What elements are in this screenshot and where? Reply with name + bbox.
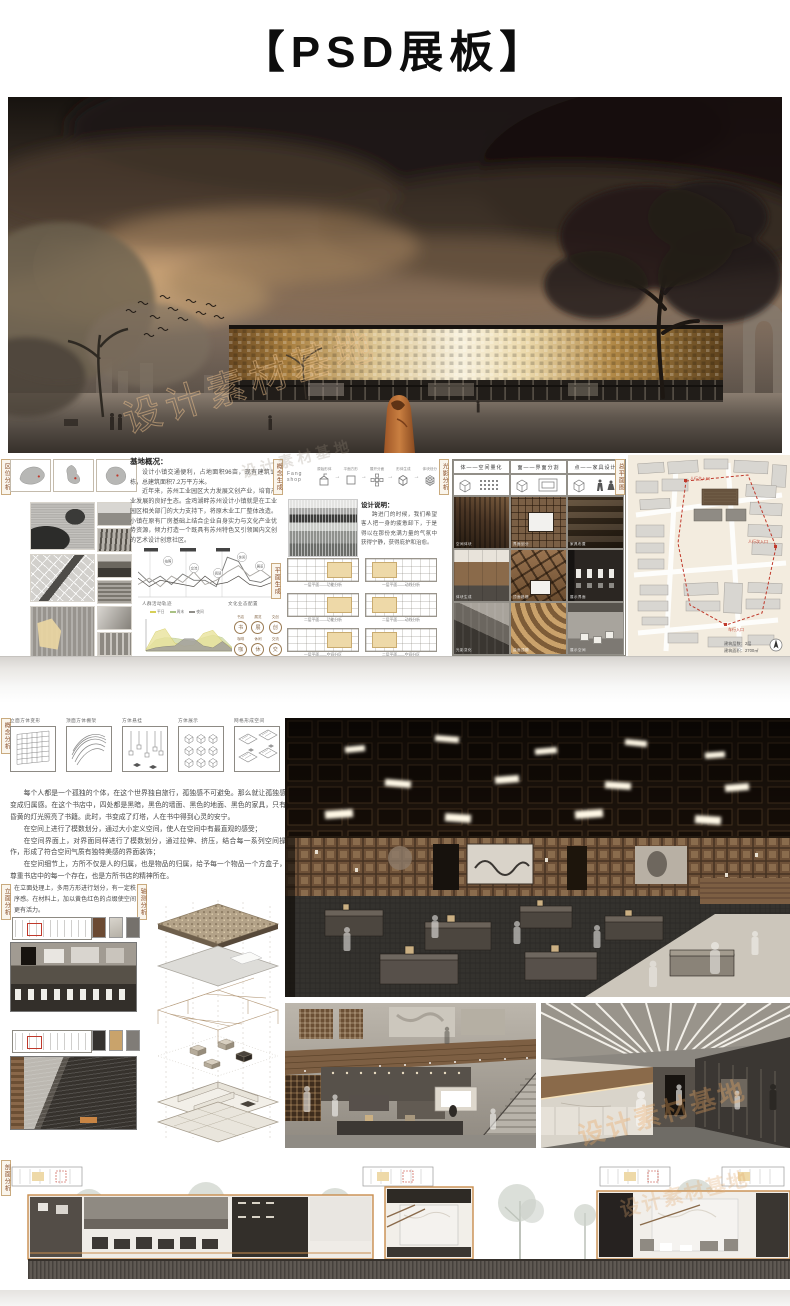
concept-p1: 每个人都是一个孤独的个体，在这个世界独自旅行，孤独感不可避免。那么就让孤独感变成… <box>10 788 286 824</box>
plan-drawing <box>365 593 437 617</box>
render-cell: 家具布置 <box>567 496 624 549</box>
concept-steps-row: Fang shop 原始形体 → 平面方形 → 展开分面 → 形体生成 → 体块… <box>287 459 437 495</box>
hanging-cubes-icon <box>123 727 167 771</box>
diagram-hanging-cubes: 方体悬挂 <box>122 718 168 772</box>
map-jiangsu <box>53 459 94 492</box>
cube-glyph-icon <box>396 473 410 487</box>
site-photo <box>97 528 132 552</box>
plan-key <box>12 1167 82 1186</box>
arrow-icon: → <box>414 474 420 480</box>
site-photo <box>97 502 132 526</box>
plan-key-strip <box>12 1030 92 1053</box>
svg-text:建筑层数：2层: 建筑层数：2层 <box>724 640 751 647</box>
render-cell: 体块生成 <box>453 549 510 602</box>
grid-header: 面——界面分割 <box>510 460 567 474</box>
concept-p4: 在空间细节上，方所不仅是人的归属，也是物品的归属，给予每一个物品一个方盒子，尊重… <box>10 859 286 883</box>
site-photo <box>97 580 132 604</box>
program-icon-bookstore: 书店书 <box>234 615 247 634</box>
plan-drawing <box>287 628 359 652</box>
section-1 <box>28 1195 373 1259</box>
program-icon-exhibition: 展览展 <box>251 615 264 634</box>
page-bottom-band <box>0 1290 790 1306</box>
diagram-facade-grid: 立面方体变形 <box>10 718 56 772</box>
site-overview-title: 基地概况： <box>130 456 277 467</box>
diagram-grid-space: 网格形成空间 <box>234 718 280 772</box>
lattice-wall <box>285 1075 321 1121</box>
concept-diagrams-row: 立面方体变形 顶面方体棚架 方体悬挂 方体展示 网格形成空间 <box>10 718 280 772</box>
svg-text:人行主入口: 人行主入口 <box>690 475 710 481</box>
site-maps-column <box>30 502 93 660</box>
elevation-render-2 <box>10 1056 137 1130</box>
divided-cube-icon <box>423 473 437 487</box>
render-cell: 空间体块 <box>453 496 510 549</box>
satellite-map-city <box>30 502 95 550</box>
board-divider <box>0 656 790 703</box>
cube-panel-icon <box>513 476 565 494</box>
grid-icon-volume <box>453 474 510 496</box>
render-cell: 顶面格栅 <box>510 549 567 602</box>
axon-slab-layer <box>158 946 278 986</box>
grid-icon-surface <box>510 474 567 496</box>
svg-text:休闲: 休闲 <box>239 554 246 559</box>
concept-p3: 在空间界面上，对界面同样进行了模数划分，通过拉伸、挤压，结合每一系列空间操作，形… <box>10 836 286 860</box>
design-note-text: 设计说明： 跨进门的时候，我们希望客人把一身的疲惫卸下，于是得以在那份充满力量的… <box>361 499 437 548</box>
concept-step-3: 展开分面 <box>370 467 384 487</box>
swatch-wood-dark <box>92 917 106 938</box>
flow-chart-legend: 平日 周末 夜间 <box>150 610 204 615</box>
svg-text:交流: 交流 <box>191 565 198 570</box>
concept-step-5: 体块划分 <box>423 467 437 487</box>
swatch-wood-light <box>109 1030 123 1051</box>
map-china <box>10 459 51 492</box>
plan-key-strip <box>12 917 92 940</box>
tag-facade-analysis: 立面分析 <box>1 884 11 920</box>
design-note-title: 设计说明： <box>361 499 437 509</box>
chart-callouts: 拍照 交流 阅读 休闲 展览 <box>163 552 264 577</box>
lattice-screen <box>299 1009 333 1039</box>
tag-light-analysis: 光影分析 <box>439 459 449 495</box>
svg-text:人行次入口: 人行次入口 <box>748 538 768 544</box>
svg-text:建筑面积：2700㎡: 建筑面积：2700㎡ <box>724 647 759 654</box>
facade-note-text: 在立面处理上，多用方形进行划分，有一定秩序感。在材料上，加以黄色红色的点缀使空间… <box>14 884 136 916</box>
plan-item: 一层平面——动线分析 <box>365 558 437 588</box>
analysis-board-top: 区位分析 基地概况： 设计小镇交通便 <box>0 455 790 658</box>
page-title: 【PSD展板】 <box>241 16 549 80</box>
title-band: 【PSD展板】 <box>0 0 790 95</box>
flow-area-chart <box>140 617 232 655</box>
ground-hatch <box>28 1261 790 1279</box>
compass-icon <box>770 639 782 651</box>
material-swatches <box>92 1030 140 1051</box>
street-map <box>30 554 95 602</box>
svg-text:车行入口: 车行入口 <box>728 626 744 632</box>
plan-item: 一层平面——功能分析 <box>287 558 359 588</box>
creative-icon: 创 <box>269 621 282 634</box>
light-analysis-grid: 体——空间量化 面——界面分割 点——家具设计 空间体块 界面划分 家具布置 体… <box>452 459 626 656</box>
cube-grid-icon <box>456 476 508 494</box>
master-plan: 人行主入口 人行次入口 车行入口 建筑层数：2层 建筑面积：2700㎡ <box>628 455 790 658</box>
plan-item: 一层平面——空间分区 <box>287 628 359 658</box>
site-overview-p2: 近年来，苏州工业园区大力发展文创产业，培育产业发展的良好生态。金鸡湖畔苏州设计小… <box>130 488 277 546</box>
section-2 <box>385 1187 473 1259</box>
coffee-icon: 咖 <box>234 643 247 656</box>
elevation-render-1 <box>10 942 137 1012</box>
plan-drawing <box>365 558 437 582</box>
diagram-cube-display: 方体展示 <box>178 718 224 772</box>
interior-render-corridor <box>541 1003 790 1148</box>
square-glyph-icon <box>344 473 358 487</box>
house-glyph-icon <box>317 473 331 487</box>
site-photos-column <box>97 502 130 656</box>
bookstore-icon: 书 <box>234 621 247 634</box>
svg-text:阅读: 阅读 <box>215 570 222 575</box>
concept-p2: 在空间上进行了模数划分，通过大小定义空间，使人在空间中有最直观的感受； <box>10 824 286 836</box>
swatch-marble <box>109 917 123 938</box>
material-swatches <box>92 917 140 938</box>
render-cell: 展示空间 <box>567 602 624 655</box>
render-cell: 界面划分 <box>510 496 567 549</box>
analysis-board-bottom: 概念分析 立面方体变形 顶面方体棚架 方体悬挂 方体展示 网格形成空间 <box>0 702 790 1306</box>
brand-text: Fang shop <box>287 471 314 483</box>
activity-line-chart: 拍照 交流 阅读 休闲 展览 <box>138 547 272 599</box>
program-icon-social: 交流交 <box>269 637 282 656</box>
section-3 <box>597 1191 790 1259</box>
social-icon: 交 <box>269 643 282 656</box>
plan-drawing <box>287 558 359 582</box>
chart-caption-left: 人群活动轨迹 <box>142 601 172 607</box>
diagram-canopy: 顶面方体棚架 <box>66 718 112 772</box>
unfolded-cube-icon <box>370 473 384 487</box>
satellite-map-site <box>30 606 95 660</box>
plan-item: 二层平面——功能分析 <box>287 593 359 623</box>
plan-drawing <box>365 628 437 652</box>
concept-step-2: 平面方形 <box>344 467 358 487</box>
wood-bench <box>700 878 790 904</box>
plan-key <box>363 1167 433 1186</box>
concept-photo-bw <box>288 499 358 557</box>
main-interior-render <box>285 718 790 997</box>
program-icon-creative: 文创创 <box>269 615 282 634</box>
tag-axon-analysis: 轴测分析 <box>137 884 147 920</box>
arrow-icon: → <box>387 474 393 480</box>
grid-header: 体——空间量化 <box>453 460 510 474</box>
plan-item: 二层平面——空间分区 <box>365 628 437 658</box>
plan-item: 二层平面——动线分析 <box>365 593 437 623</box>
hero-exterior-render: 设计素材基地 <box>8 97 782 453</box>
render-cell: 曲面顶棚 <box>510 602 567 655</box>
grid-wall-icon <box>11 727 55 771</box>
curved-canopy-icon <box>67 727 111 771</box>
axon-roof-layer <box>158 904 278 949</box>
exhibition-icon: 展 <box>251 621 264 634</box>
plan-thumbnails: 一层平面——功能分析 一层平面——动线分析 二层平面——功能分析 二层平面——动… <box>287 558 437 658</box>
tag-plan-generation: 平面生成 <box>271 563 281 599</box>
site-building <box>694 489 746 521</box>
leisure-icon: 休 <box>251 643 264 656</box>
program-icon-coffee: 咖啡咖 <box>234 637 247 656</box>
program-icon-leisure: 休闲休 <box>251 637 264 656</box>
poster-page: 【PSD展板】 <box>0 0 790 1306</box>
program-icons: 书店书 展览展 文创创 咖啡咖 休闲休 交流交 <box>234 615 282 656</box>
concept-step-1: 原始形体 <box>317 467 331 487</box>
concept-step-4: 形体生成 <box>396 467 410 487</box>
site-overview-p1: 设计小镇交通便利，占地面积96亩，现有建筑12栋，总建筑面积7.2万平方米。 <box>130 469 277 488</box>
plan-key <box>722 1167 784 1186</box>
site-photo <box>97 554 132 578</box>
plan-key <box>600 1167 670 1186</box>
sections-strip <box>0 1165 790 1287</box>
arrow-icon: → <box>361 474 367 480</box>
concept-text-block: 每个人都是一个孤独的个体，在这个世界独自旅行，孤独感不可避免。那么就让孤独感变成… <box>10 788 286 883</box>
tag-master-plan: 总平面图 <box>615 459 625 495</box>
iso-tiles-icon <box>235 727 279 771</box>
svg-text:展览: 展览 <box>257 563 264 568</box>
site-photo <box>97 632 132 656</box>
region-maps-row <box>10 459 137 492</box>
chart-caption-right: 文化业态配置 <box>228 601 258 607</box>
tag-concept-generation: 概念生成 <box>273 459 283 495</box>
swatch-gray <box>126 1030 140 1051</box>
arrow-icon: → <box>335 474 341 480</box>
site-photo <box>97 606 132 630</box>
interior-render-lobby <box>285 1003 536 1148</box>
exploded-axon-diagram <box>148 898 288 1144</box>
render-cell: 光影变化 <box>453 602 510 655</box>
design-note-body: 跨进门的时候，我们希望客人把一身的疲惫卸下，于是得以在那份充满力量的气氛中获得宁… <box>361 511 437 548</box>
render-cell: 展示界面 <box>567 549 624 602</box>
swatch-concrete <box>126 917 140 938</box>
plan-drawing <box>287 593 359 617</box>
cube-people-icon <box>570 476 622 494</box>
nine-cubes-icon <box>179 727 223 771</box>
site-overview-text: 基地概况： 设计小镇交通便利，占地面积96亩，现有建筑12栋，总建筑面积7.2万… <box>130 456 277 547</box>
swatch-stone-dark <box>92 1030 106 1051</box>
svg-text:拍照: 拍照 <box>165 558 172 563</box>
